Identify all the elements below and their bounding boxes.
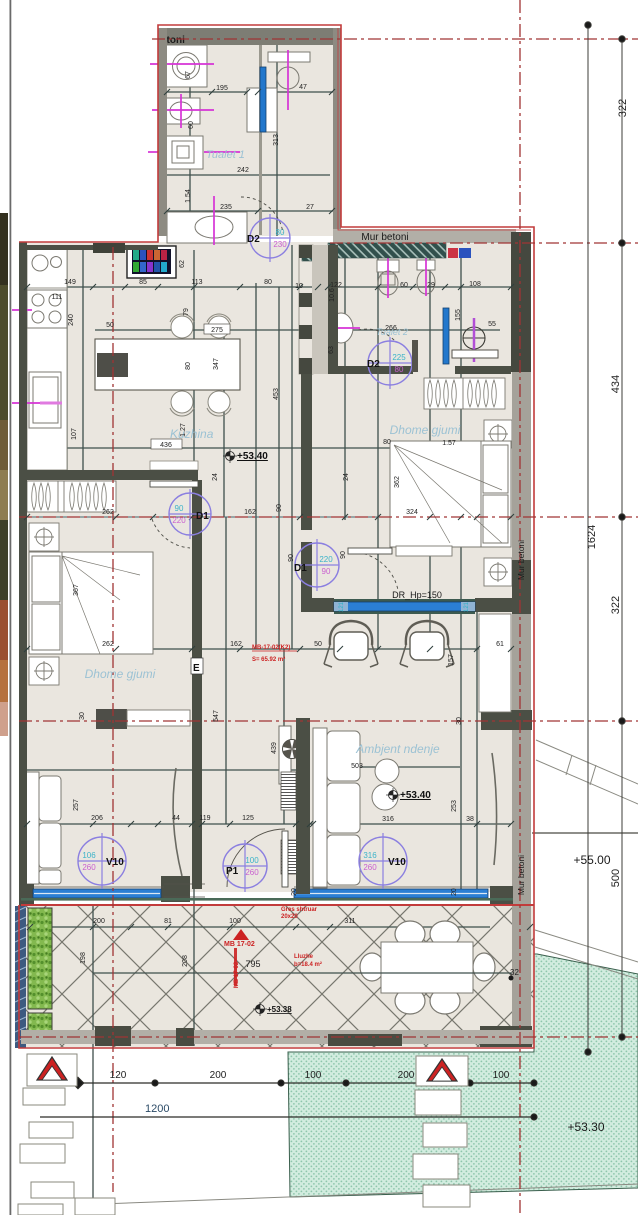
svg-text:30: 30 (79, 712, 86, 720)
svg-text:S= 65.92 m²: S= 65.92 m² (252, 656, 285, 663)
svg-text:439: 439 (271, 742, 278, 754)
svg-text:316: 316 (382, 816, 394, 823)
svg-text:100: 100 (493, 1070, 510, 1081)
svg-text:80: 80 (395, 365, 404, 374)
svg-text:100: 100 (305, 1070, 322, 1081)
svg-text:50: 50 (106, 322, 114, 329)
svg-text:313: 313 (273, 134, 280, 146)
svg-text:347: 347 (213, 358, 220, 370)
svg-text:322: 322 (617, 99, 629, 117)
svg-text:38: 38 (466, 816, 474, 823)
svg-text:316: 316 (363, 851, 377, 860)
svg-text:1.27: 1.27 (180, 423, 187, 437)
svg-text:90: 90 (340, 551, 347, 559)
svg-text:225: 225 (392, 353, 406, 362)
svg-text:125: 125 (242, 815, 254, 822)
svg-text:90: 90 (322, 567, 331, 576)
svg-text:503: 503 (351, 763, 363, 770)
svg-text:80: 80 (383, 439, 391, 446)
svg-text:E: E (193, 663, 200, 674)
svg-text:547: 547 (213, 710, 220, 722)
svg-text:80: 80 (264, 279, 272, 286)
svg-text:149: 149 (64, 279, 76, 286)
svg-text:260: 260 (363, 863, 377, 872)
svg-text:257: 257 (73, 799, 80, 811)
svg-text:235: 235 (220, 204, 232, 211)
svg-text:Ambjent ndenje: Ambjent ndenje (355, 742, 440, 756)
svg-text:61: 61 (496, 641, 504, 648)
svg-text:100: 100 (245, 856, 259, 865)
svg-text:80: 80 (276, 228, 285, 237)
svg-text:119: 119 (199, 815, 210, 822)
svg-text:MB-17-02(K2): MB-17-02(K2) (252, 645, 290, 651)
svg-text:10.6: 10.6 (329, 288, 336, 302)
svg-text:266: 266 (385, 325, 397, 332)
svg-text:1200: 1200 (145, 1103, 169, 1115)
svg-text:262: 262 (102, 509, 114, 516)
svg-text:453: 453 (273, 388, 280, 400)
svg-text:80: 80 (185, 362, 192, 370)
svg-text:162: 162 (230, 641, 242, 648)
svg-text:+55.00: +55.00 (573, 853, 610, 867)
svg-text:30: 30 (456, 717, 463, 725)
svg-text:67: 67 (185, 71, 192, 79)
svg-text:198: 198 (80, 952, 87, 964)
svg-text:+53.38: +53.38 (267, 1005, 292, 1014)
svg-text:24: 24 (212, 473, 219, 481)
svg-text:434: 434 (610, 375, 622, 393)
svg-text:20: 20 (451, 888, 458, 896)
svg-text:260: 260 (82, 863, 96, 872)
svg-text:240: 240 (68, 314, 75, 326)
svg-text:120: 120 (110, 1070, 127, 1081)
svg-text:206: 206 (91, 815, 103, 822)
svg-text:106: 106 (82, 851, 96, 860)
svg-text:260: 260 (245, 868, 259, 877)
svg-text:195: 195 (216, 85, 228, 92)
svg-text:795: 795 (245, 959, 260, 969)
svg-text:262: 262 (102, 641, 114, 648)
svg-text:Mur betoni: Mur betoni (516, 540, 526, 580)
svg-text:230: 230 (273, 240, 287, 249)
svg-text:MB 17-02: MB 17-02 (224, 941, 255, 948)
svg-text:47: 47 (299, 84, 307, 91)
svg-text:121: 121 (339, 601, 345, 612)
svg-text:85: 85 (139, 279, 147, 286)
svg-text:Dhome gjumi: Dhome gjumi (85, 667, 156, 681)
svg-text:107: 107 (71, 428, 78, 440)
svg-text:63: 63 (328, 346, 335, 354)
svg-text:D2: D2 (247, 234, 260, 245)
svg-text:20x20: 20x20 (281, 914, 298, 920)
svg-text:D2: D2 (367, 359, 380, 370)
svg-text:200: 200 (93, 918, 105, 925)
svg-text:Tualet 1: Tualet 1 (206, 149, 245, 161)
svg-text:10: 10 (295, 283, 303, 290)
svg-text:111: 111 (52, 294, 63, 301)
svg-text:79: 79 (183, 308, 190, 316)
svg-text:275: 275 (211, 327, 223, 334)
svg-text:242: 242 (237, 167, 249, 174)
svg-text:V10: V10 (106, 857, 124, 868)
svg-text:44: 44 (172, 815, 180, 822)
svg-text:Mur betoni: Mur betoni (516, 855, 526, 895)
svg-text:24: 24 (343, 473, 350, 481)
svg-text:60: 60 (188, 121, 195, 129)
svg-text:200: 200 (210, 1070, 227, 1081)
svg-text:1624: 1624 (586, 525, 598, 549)
svg-text:D1: D1 (196, 511, 209, 522)
svg-text:208: 208 (182, 955, 189, 967)
svg-text:1.57: 1.57 (442, 440, 456, 447)
svg-text:113: 113 (191, 279, 202, 286)
svg-text:157: 157 (448, 654, 455, 666)
svg-text:20: 20 (291, 888, 298, 896)
svg-text:90: 90 (276, 504, 283, 512)
svg-text:55: 55 (488, 321, 496, 328)
svg-text:122: 122 (330, 282, 342, 289)
svg-text:D1: D1 (294, 563, 307, 574)
svg-text:Gres shtruar: Gres shtruar (281, 907, 318, 913)
svg-text:220: 220 (319, 555, 333, 564)
svg-text:500: 500 (610, 869, 622, 887)
svg-text:+53.30: +53.30 (567, 1120, 604, 1134)
svg-text:311: 311 (344, 918, 355, 925)
svg-text:P1: P1 (226, 866, 239, 877)
svg-text:Dhome gjumi: Dhome gjumi (390, 423, 461, 437)
svg-text:121: 121 (464, 601, 470, 612)
svg-text:DR_Hp=150: DR_Hp=150 (392, 590, 442, 600)
svg-text:162: 162 (244, 509, 256, 516)
svg-text:155: 155 (455, 309, 462, 321)
svg-text:Lluzhe: Lluzhe (294, 954, 314, 960)
svg-text:b=18.4 m²: b=18.4 m² (294, 961, 322, 968)
svg-text:29: 29 (427, 282, 435, 289)
svg-text:1.54: 1.54 (185, 189, 192, 203)
svg-text:60: 60 (400, 282, 408, 289)
svg-text:362: 362 (394, 476, 401, 488)
svg-text:+53.40: +53.40 (237, 451, 268, 462)
svg-text:220: 220 (172, 516, 186, 525)
svg-text:108: 108 (469, 281, 481, 288)
svg-text:436: 436 (160, 442, 172, 449)
svg-text:50: 50 (314, 641, 322, 648)
svg-text:90: 90 (175, 504, 184, 513)
svg-text:90: 90 (288, 554, 295, 562)
svg-text:324: 324 (406, 509, 418, 516)
svg-text:100: 100 (229, 918, 241, 925)
svg-text:200: 200 (398, 1070, 415, 1081)
svg-text:27: 27 (306, 204, 314, 211)
svg-text:V10: V10 (388, 857, 406, 868)
svg-text:Mur betoni: Mur betoni (361, 232, 408, 243)
svg-text:367: 367 (73, 584, 80, 596)
svg-text:322: 322 (610, 596, 622, 614)
svg-text:62: 62 (179, 260, 186, 268)
svg-text:253: 253 (451, 800, 458, 812)
svg-text:+53.40: +53.40 (400, 790, 431, 801)
